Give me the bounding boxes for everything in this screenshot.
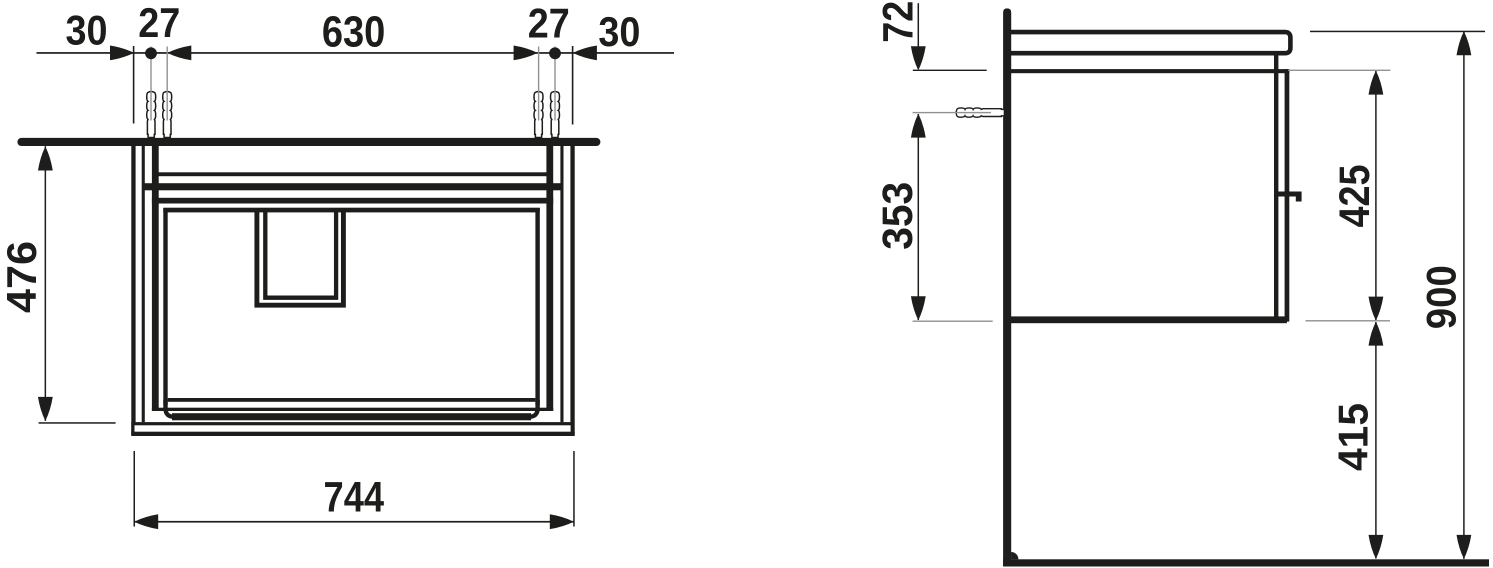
svg-text:415: 415 — [1330, 403, 1377, 471]
svg-text:27: 27 — [528, 0, 570, 46]
svg-text:425: 425 — [1331, 165, 1379, 228]
svg-text:30: 30 — [66, 6, 108, 53]
svg-text:27: 27 — [138, 0, 180, 46]
svg-text:30: 30 — [598, 8, 640, 55]
svg-text:353: 353 — [874, 182, 922, 250]
svg-text:476: 476 — [0, 241, 45, 313]
svg-text:744: 744 — [324, 474, 385, 522]
svg-text:900: 900 — [1418, 265, 1465, 329]
svg-text:630: 630 — [322, 9, 386, 57]
svg-text:72: 72 — [875, 1, 923, 43]
